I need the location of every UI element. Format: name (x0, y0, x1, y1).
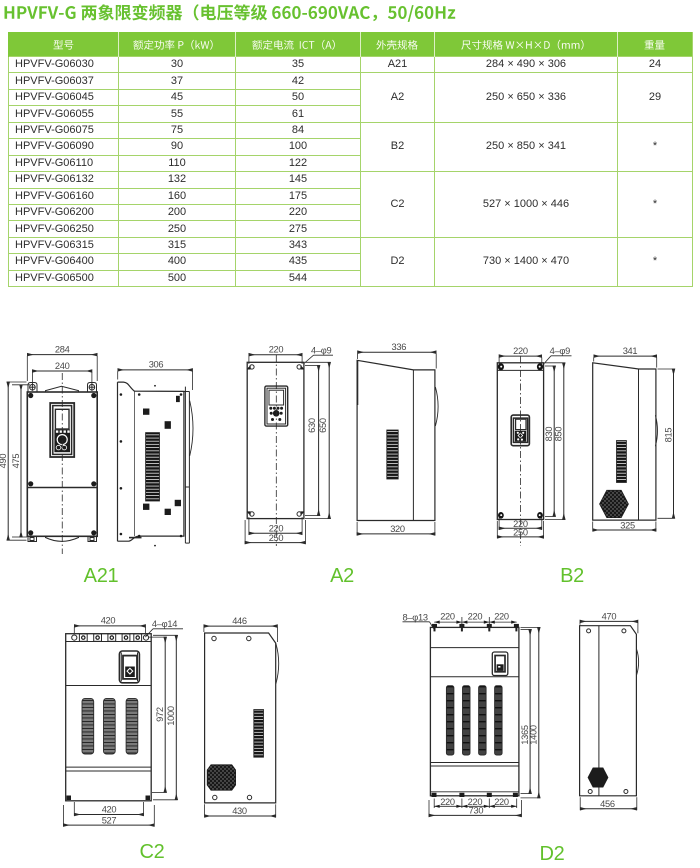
svg-text:250: 250 (513, 528, 528, 538)
svg-text:456: 456 (600, 799, 615, 809)
svg-text:730: 730 (469, 806, 484, 816)
svg-text:220: 220 (440, 797, 455, 807)
svg-text:336: 336 (391, 342, 406, 352)
svg-text:420: 420 (101, 616, 116, 626)
svg-text:220: 220 (494, 612, 509, 622)
svg-text:4–φ14: 4–φ14 (152, 619, 177, 629)
svg-text:D2: D2 (540, 843, 565, 865)
svg-text:8–φ13: 8–φ13 (403, 612, 428, 622)
svg-text:430: 430 (232, 806, 247, 816)
svg-text:650: 650 (318, 418, 328, 433)
svg-text:972: 972 (155, 707, 165, 722)
svg-text:A21: A21 (84, 565, 119, 587)
svg-text:B2: B2 (560, 565, 584, 587)
svg-text:4–φ9: 4–φ9 (550, 346, 570, 356)
svg-text:830: 830 (544, 427, 554, 442)
svg-text:284: 284 (55, 344, 70, 354)
svg-text:1000: 1000 (166, 706, 176, 726)
svg-text:240: 240 (55, 361, 70, 371)
svg-text:475: 475 (11, 454, 21, 469)
svg-text:4–φ9: 4–φ9 (311, 346, 331, 356)
svg-text:815: 815 (663, 428, 673, 443)
svg-text:250: 250 (269, 533, 284, 543)
svg-text:325: 325 (620, 520, 635, 530)
svg-text:A2: A2 (330, 565, 354, 587)
svg-text:527: 527 (102, 815, 117, 825)
svg-text:341: 341 (623, 346, 638, 356)
svg-text:306: 306 (149, 360, 164, 370)
svg-text:446: 446 (232, 616, 247, 626)
svg-text:1400: 1400 (529, 725, 539, 745)
svg-text:320: 320 (390, 524, 405, 534)
svg-text:220: 220 (468, 612, 483, 622)
svg-text:C2: C2 (140, 841, 165, 863)
svg-text:220: 220 (440, 612, 455, 622)
svg-text:220: 220 (513, 346, 528, 356)
svg-text:470: 470 (602, 611, 617, 621)
svg-text:490: 490 (0, 454, 8, 469)
svg-text:850: 850 (554, 427, 564, 442)
svg-text:220: 220 (494, 797, 509, 807)
svg-text:420: 420 (102, 805, 117, 815)
svg-text:630: 630 (307, 418, 317, 433)
svg-text:220: 220 (269, 345, 284, 355)
